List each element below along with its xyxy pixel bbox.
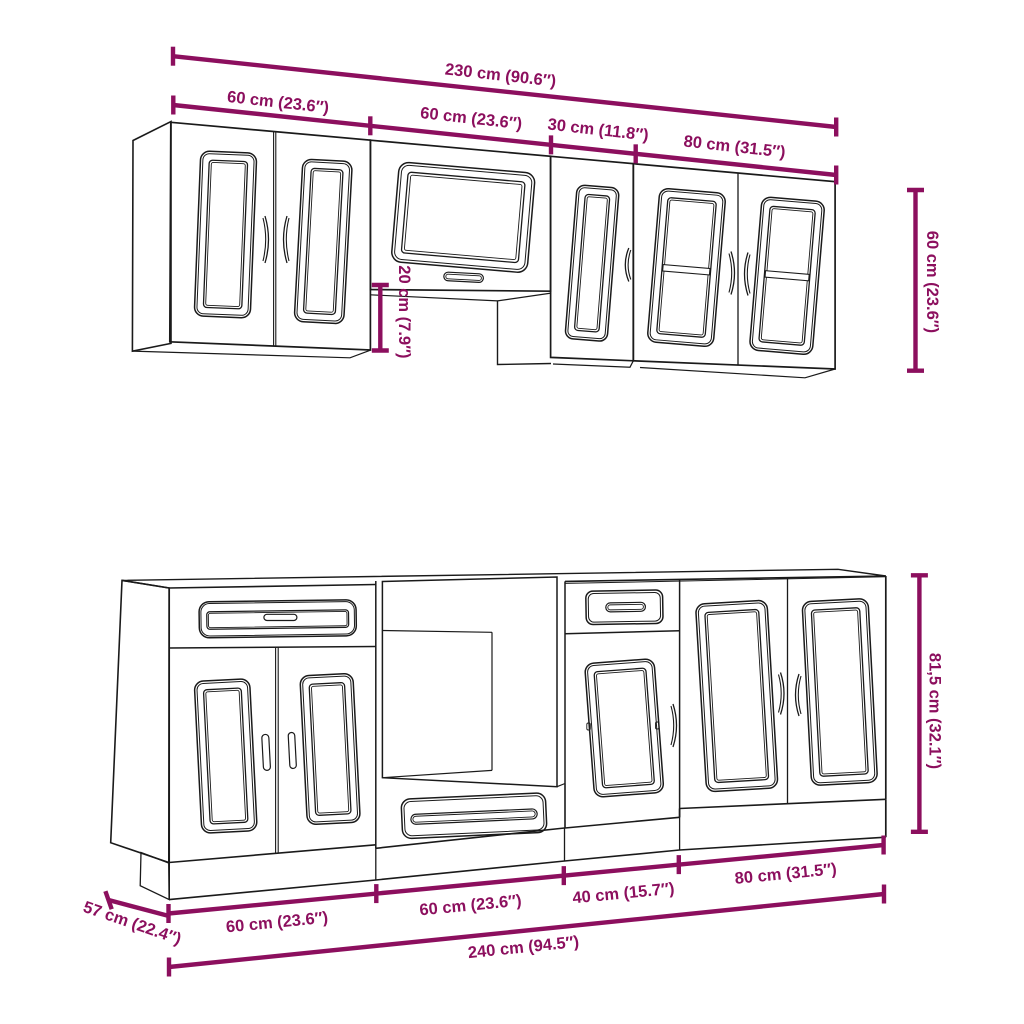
svg-text:20 cm (7.9″): 20 cm (7.9″) bbox=[395, 265, 413, 358]
svg-text:81,5 cm (32.1″): 81,5 cm (32.1″) bbox=[926, 653, 944, 769]
svg-text:60 cm (23.6″): 60 cm (23.6″) bbox=[923, 231, 941, 333]
